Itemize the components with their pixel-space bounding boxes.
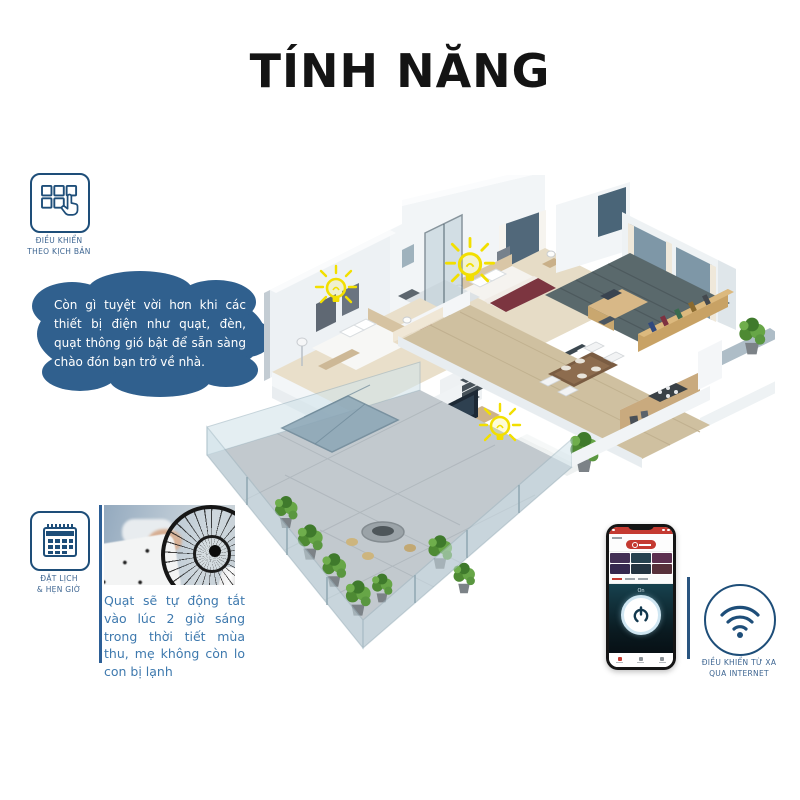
sleeping-child-fan-photo (104, 505, 235, 585)
remote-feature-icon-circle (704, 584, 776, 656)
schedule-feature-label: ĐẶT LỊCH & HẸN GIỜ (6, 574, 112, 596)
schedule-story-text: Quạt sẽ tự động tắt vào lúc 2 giờ sáng t… (104, 592, 245, 681)
phone-divider-line (687, 577, 690, 659)
signal-dot (612, 529, 615, 531)
power-state-label: On (637, 588, 644, 594)
power-panel: On (609, 584, 673, 653)
scenario-feature-icon-box (30, 173, 90, 233)
remote-feature-label: ĐIỀU KHIỂN TỪ XA QUA INTERNET (688, 658, 790, 680)
brand-logo (626, 540, 656, 549)
page-title: TÍNH NĂNG (0, 44, 800, 98)
nav-settings-icon (660, 657, 664, 661)
app-header (609, 534, 673, 552)
scenario-feature-label: ĐIỀU KHIỂN THEO KỊCH BẢN (6, 236, 112, 258)
wifi-dot (667, 529, 670, 531)
nav-scenes-icon (639, 657, 643, 661)
phone-screen: On (609, 527, 673, 667)
smartphone-mockup: On (606, 524, 676, 670)
schedule-feature-icon-box (30, 511, 90, 571)
phone-bottom-nav (609, 653, 673, 667)
device-thumbnails-grid (609, 552, 673, 575)
fan-hub (209, 545, 221, 557)
wifi-icon (718, 602, 762, 638)
nav-home-icon (618, 657, 622, 661)
grid-tap-icon (41, 185, 79, 221)
app-tabs (609, 575, 673, 584)
battery-dot (662, 529, 665, 531)
calendar-icon (43, 524, 77, 558)
phone-notch (628, 525, 654, 530)
power-icon (632, 606, 650, 624)
power-button (621, 595, 661, 635)
header-text-placeholder (612, 537, 622, 539)
story-accent-bar (99, 505, 102, 663)
